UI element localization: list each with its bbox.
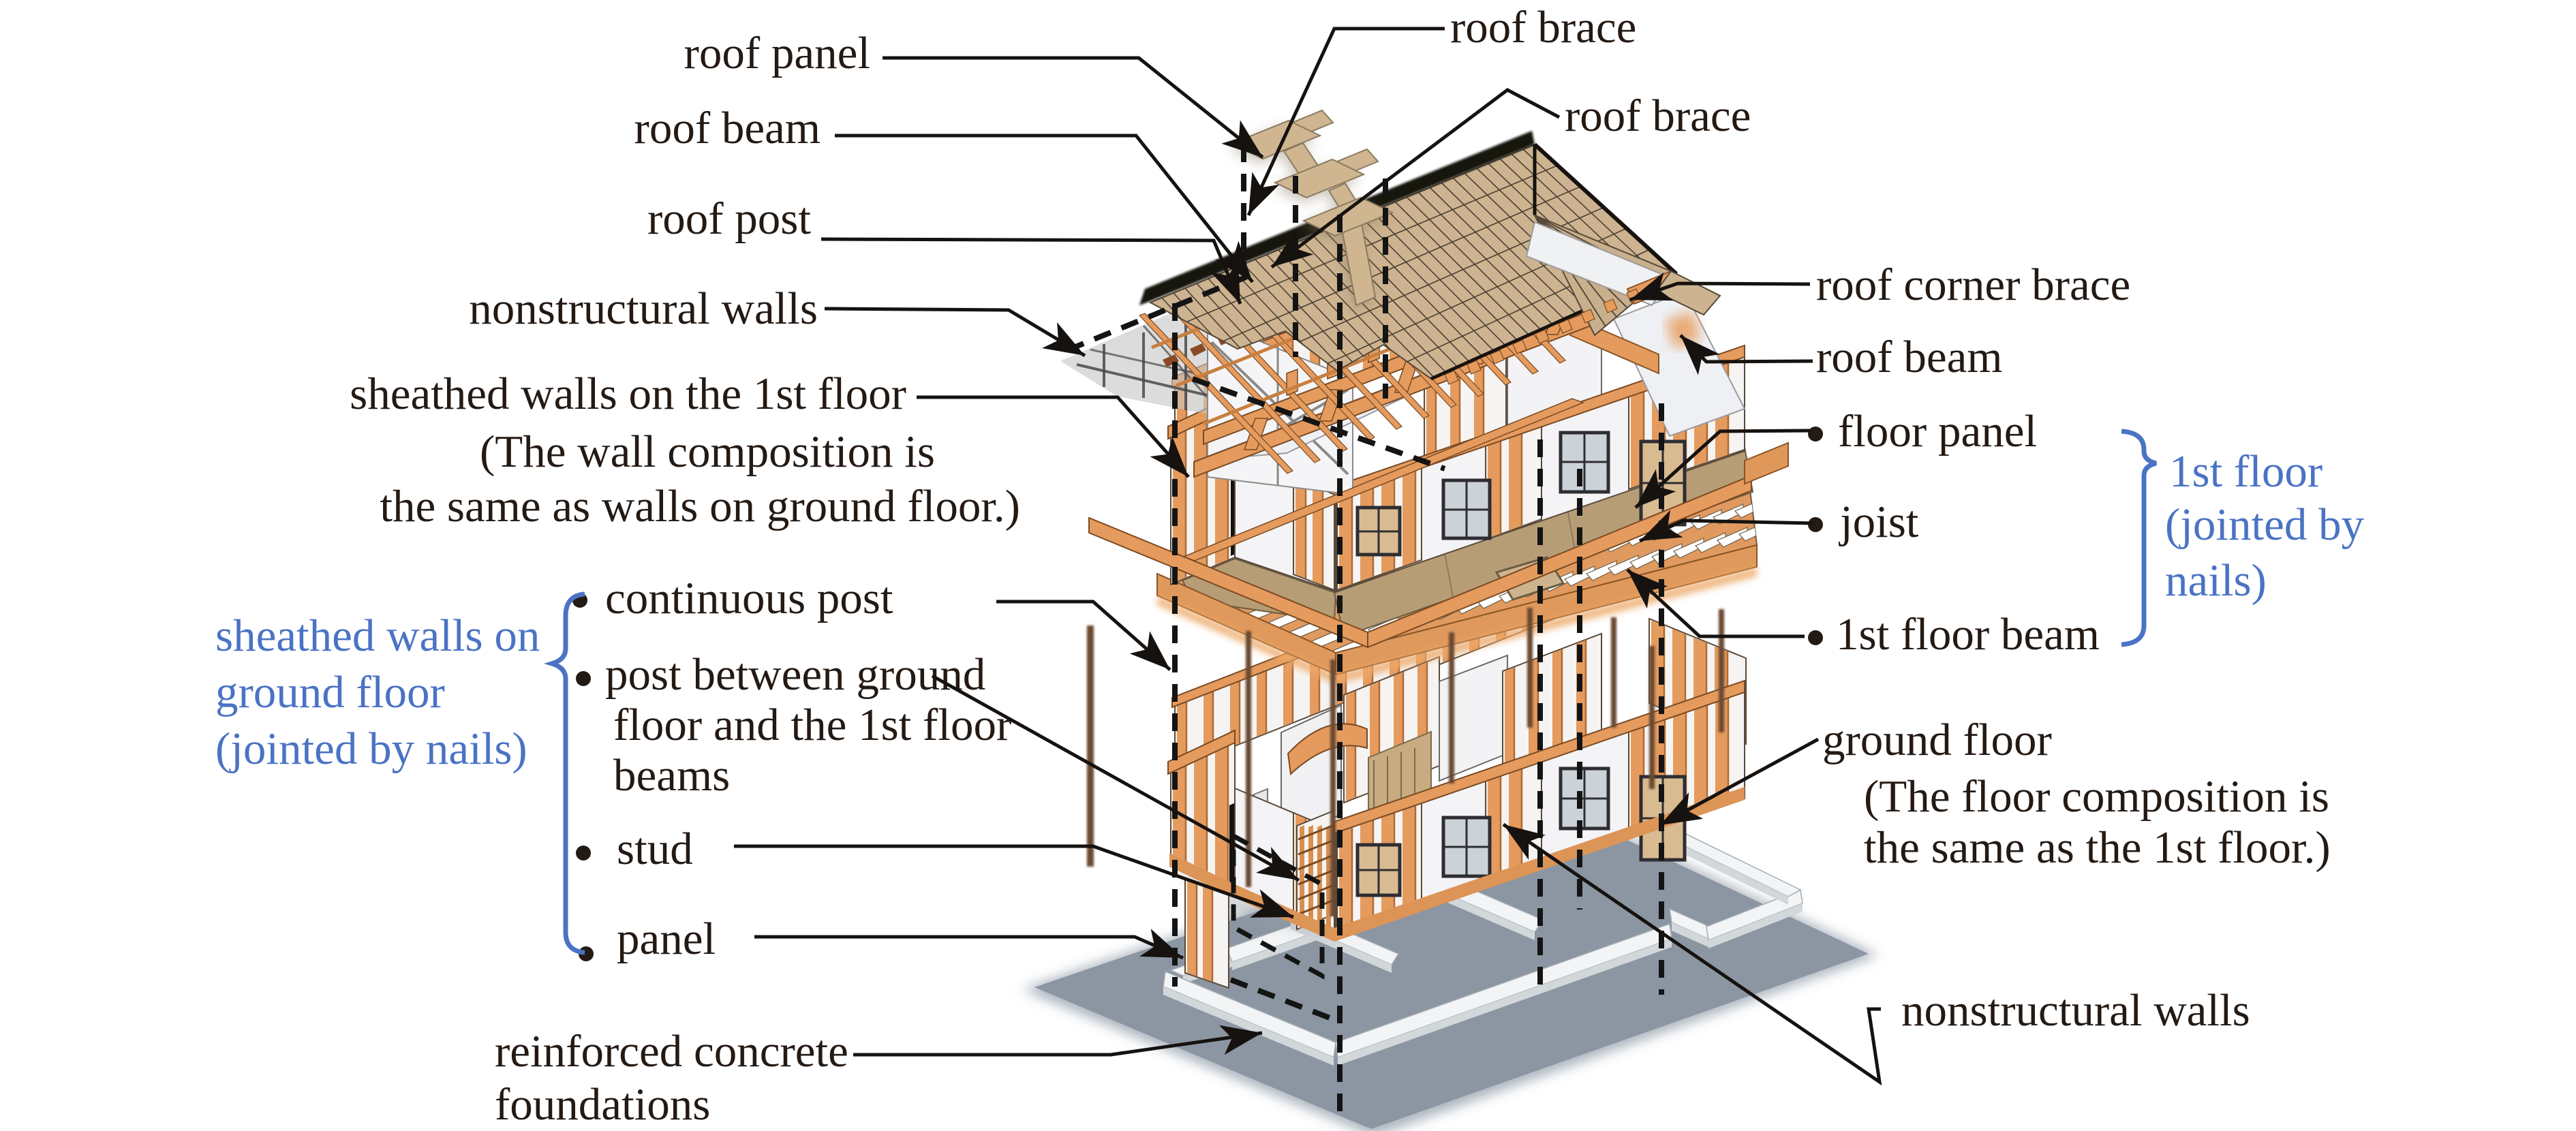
svg-text:nonstructural walls: nonstructural walls (469, 283, 818, 334)
svg-text:nails): nails) (2165, 555, 2267, 606)
svg-text:continuous post: continuous post (605, 573, 893, 623)
svg-text:ground floor: ground floor (215, 667, 445, 717)
svg-text:stud: stud (617, 824, 693, 874)
svg-text:ground floor: ground floor (1822, 715, 2052, 765)
svg-text:the same as walls on ground fl: the same as walls on ground floor.) (380, 481, 1020, 531)
svg-text:roof brace: roof brace (1565, 91, 1751, 141)
svg-text:roof panel: roof panel (684, 28, 870, 78)
svg-text:1st floor beam: 1st floor beam (1836, 609, 2100, 660)
svg-text:sheathed walls on: sheathed walls on (215, 610, 540, 661)
svg-text:joist: joist (1839, 497, 1919, 547)
svg-text:roof beam: roof beam (1816, 332, 2002, 382)
svg-text:beams: beams (613, 750, 730, 801)
svg-text:roof beam: roof beam (634, 103, 821, 153)
svg-text:(jointed by nails): (jointed by nails) (215, 724, 527, 774)
svg-text:panel: panel (617, 914, 716, 964)
svg-text:roof post: roof post (647, 193, 811, 244)
svg-text:nonstructural walls: nonstructural walls (1901, 985, 2250, 1036)
svg-text:post between ground: post between ground (605, 649, 985, 700)
svg-text:foundations: foundations (495, 1079, 710, 1130)
svg-text:roof brace: roof brace (1450, 2, 1636, 52)
svg-text:reinforced concrete: reinforced concrete (495, 1026, 848, 1076)
svg-text:floor panel: floor panel (1838, 406, 2037, 456)
svg-text:(The wall composition is: (The wall composition is (480, 427, 935, 477)
svg-text:sheathed walls on the 1st floo: sheathed walls on the 1st floor (350, 369, 906, 419)
svg-text:roof corner brace: roof corner brace (1816, 260, 2130, 310)
svg-text:floor and the 1st floor: floor and the 1st floor (613, 700, 1011, 750)
svg-text:1st floor: 1st floor (2169, 446, 2322, 497)
svg-text:the same as the 1st floor.): the same as the 1st floor.) (1864, 822, 2331, 873)
svg-text:(jointed by: (jointed by (2165, 499, 2365, 550)
svg-text:(The floor composition is: (The floor composition is (1864, 771, 2329, 822)
